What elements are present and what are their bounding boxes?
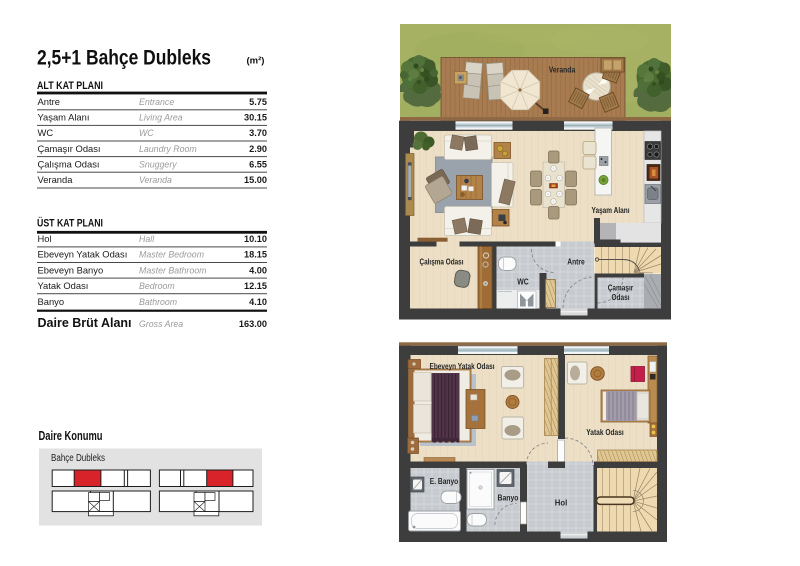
svg-text:Bathroom: Bathroom (139, 297, 177, 307)
svg-text:Yatak Odası: Yatak Odası (586, 427, 624, 437)
svg-text:Veranda: Veranda (549, 65, 576, 75)
svg-text:Ebeveyn Yatak Odası: Ebeveyn Yatak Odası (38, 249, 128, 260)
svg-text:18.15: 18.15 (244, 250, 267, 260)
svg-text:WC: WC (517, 277, 529, 287)
svg-text:4.00: 4.00 (249, 265, 267, 275)
svg-text:Banyo: Banyo (38, 296, 65, 307)
svg-text:Laundry Room: Laundry Room (139, 144, 197, 154)
svg-text:ALT KAT PLANI: ALT KAT PLANI (37, 80, 103, 92)
svg-text:Antre: Antre (567, 257, 585, 267)
svg-text:2.90: 2.90 (249, 144, 267, 154)
svg-text:Bedroom: Bedroom (139, 281, 175, 291)
svg-text:Master Bedroom: Master Bedroom (139, 250, 204, 260)
svg-text:Çamaşır Odası: Çamaşır Odası (38, 143, 101, 154)
svg-text:Hol: Hol (555, 498, 568, 508)
svg-text:Living Area: Living Area (139, 113, 183, 123)
svg-text:Yaşam Alanı: Yaşam Alanı (38, 112, 90, 123)
svg-text:Ebeveyn Banyo: Ebeveyn Banyo (38, 264, 104, 275)
svg-text:Master Bathroom: Master Bathroom (139, 265, 206, 275)
svg-text:Hol: Hol (38, 233, 52, 244)
svg-text:Çalışma Odası: Çalışma Odası (420, 257, 464, 267)
svg-text:Çalışma Odası: Çalışma Odası (38, 158, 100, 169)
svg-text:Daire Konumu: Daire Konumu (39, 429, 103, 443)
svg-text:Hall: Hall (139, 234, 155, 244)
svg-text:ÜST KAT PLANI: ÜST KAT PLANI (37, 217, 103, 230)
svg-text:Banyo: Banyo (498, 493, 519, 503)
svg-text:Gross Area: Gross Area (139, 319, 183, 329)
svg-text:(m²): (m²) (247, 56, 265, 67)
svg-text:Yatak Odası: Yatak Odası (38, 280, 89, 291)
svg-text:3.70: 3.70 (249, 128, 267, 138)
svg-text:4.10: 4.10 (249, 297, 267, 307)
svg-text:Ebeveyn Yatak Odası: Ebeveyn Yatak Odası (430, 361, 495, 371)
svg-text:15.00: 15.00 (244, 175, 267, 185)
svg-text:Entrance: Entrance (139, 97, 174, 107)
svg-text:Veranda: Veranda (38, 174, 74, 185)
svg-text:163.00: 163.00 (239, 319, 267, 329)
svg-text:Veranda: Veranda (139, 175, 172, 185)
svg-text:Odası: Odası (612, 292, 630, 302)
svg-text:Daire Brüt Alanı: Daire Brüt Alanı (38, 316, 132, 330)
svg-text:5.75: 5.75 (249, 97, 267, 107)
svg-text:30.15: 30.15 (244, 113, 267, 123)
svg-text:Yaşam Alanı: Yaşam Alanı (592, 205, 630, 215)
svg-text:WC: WC (38, 127, 54, 138)
svg-text:Antre: Antre (38, 96, 60, 107)
svg-text:Çamaşır: Çamaşır (608, 283, 634, 293)
svg-text:10.10: 10.10 (244, 234, 267, 244)
svg-text:2,5+1 Bahçe Dubleks: 2,5+1 Bahçe Dubleks (37, 47, 211, 70)
svg-text:E. Banyo: E. Banyo (430, 476, 459, 486)
svg-text:WC: WC (139, 128, 154, 138)
svg-text:6.55: 6.55 (249, 159, 267, 169)
svg-text:Snuggery: Snuggery (139, 159, 177, 169)
svg-text:12.15: 12.15 (244, 281, 267, 291)
svg-text:Bahçe Dubleks: Bahçe Dubleks (51, 453, 105, 464)
